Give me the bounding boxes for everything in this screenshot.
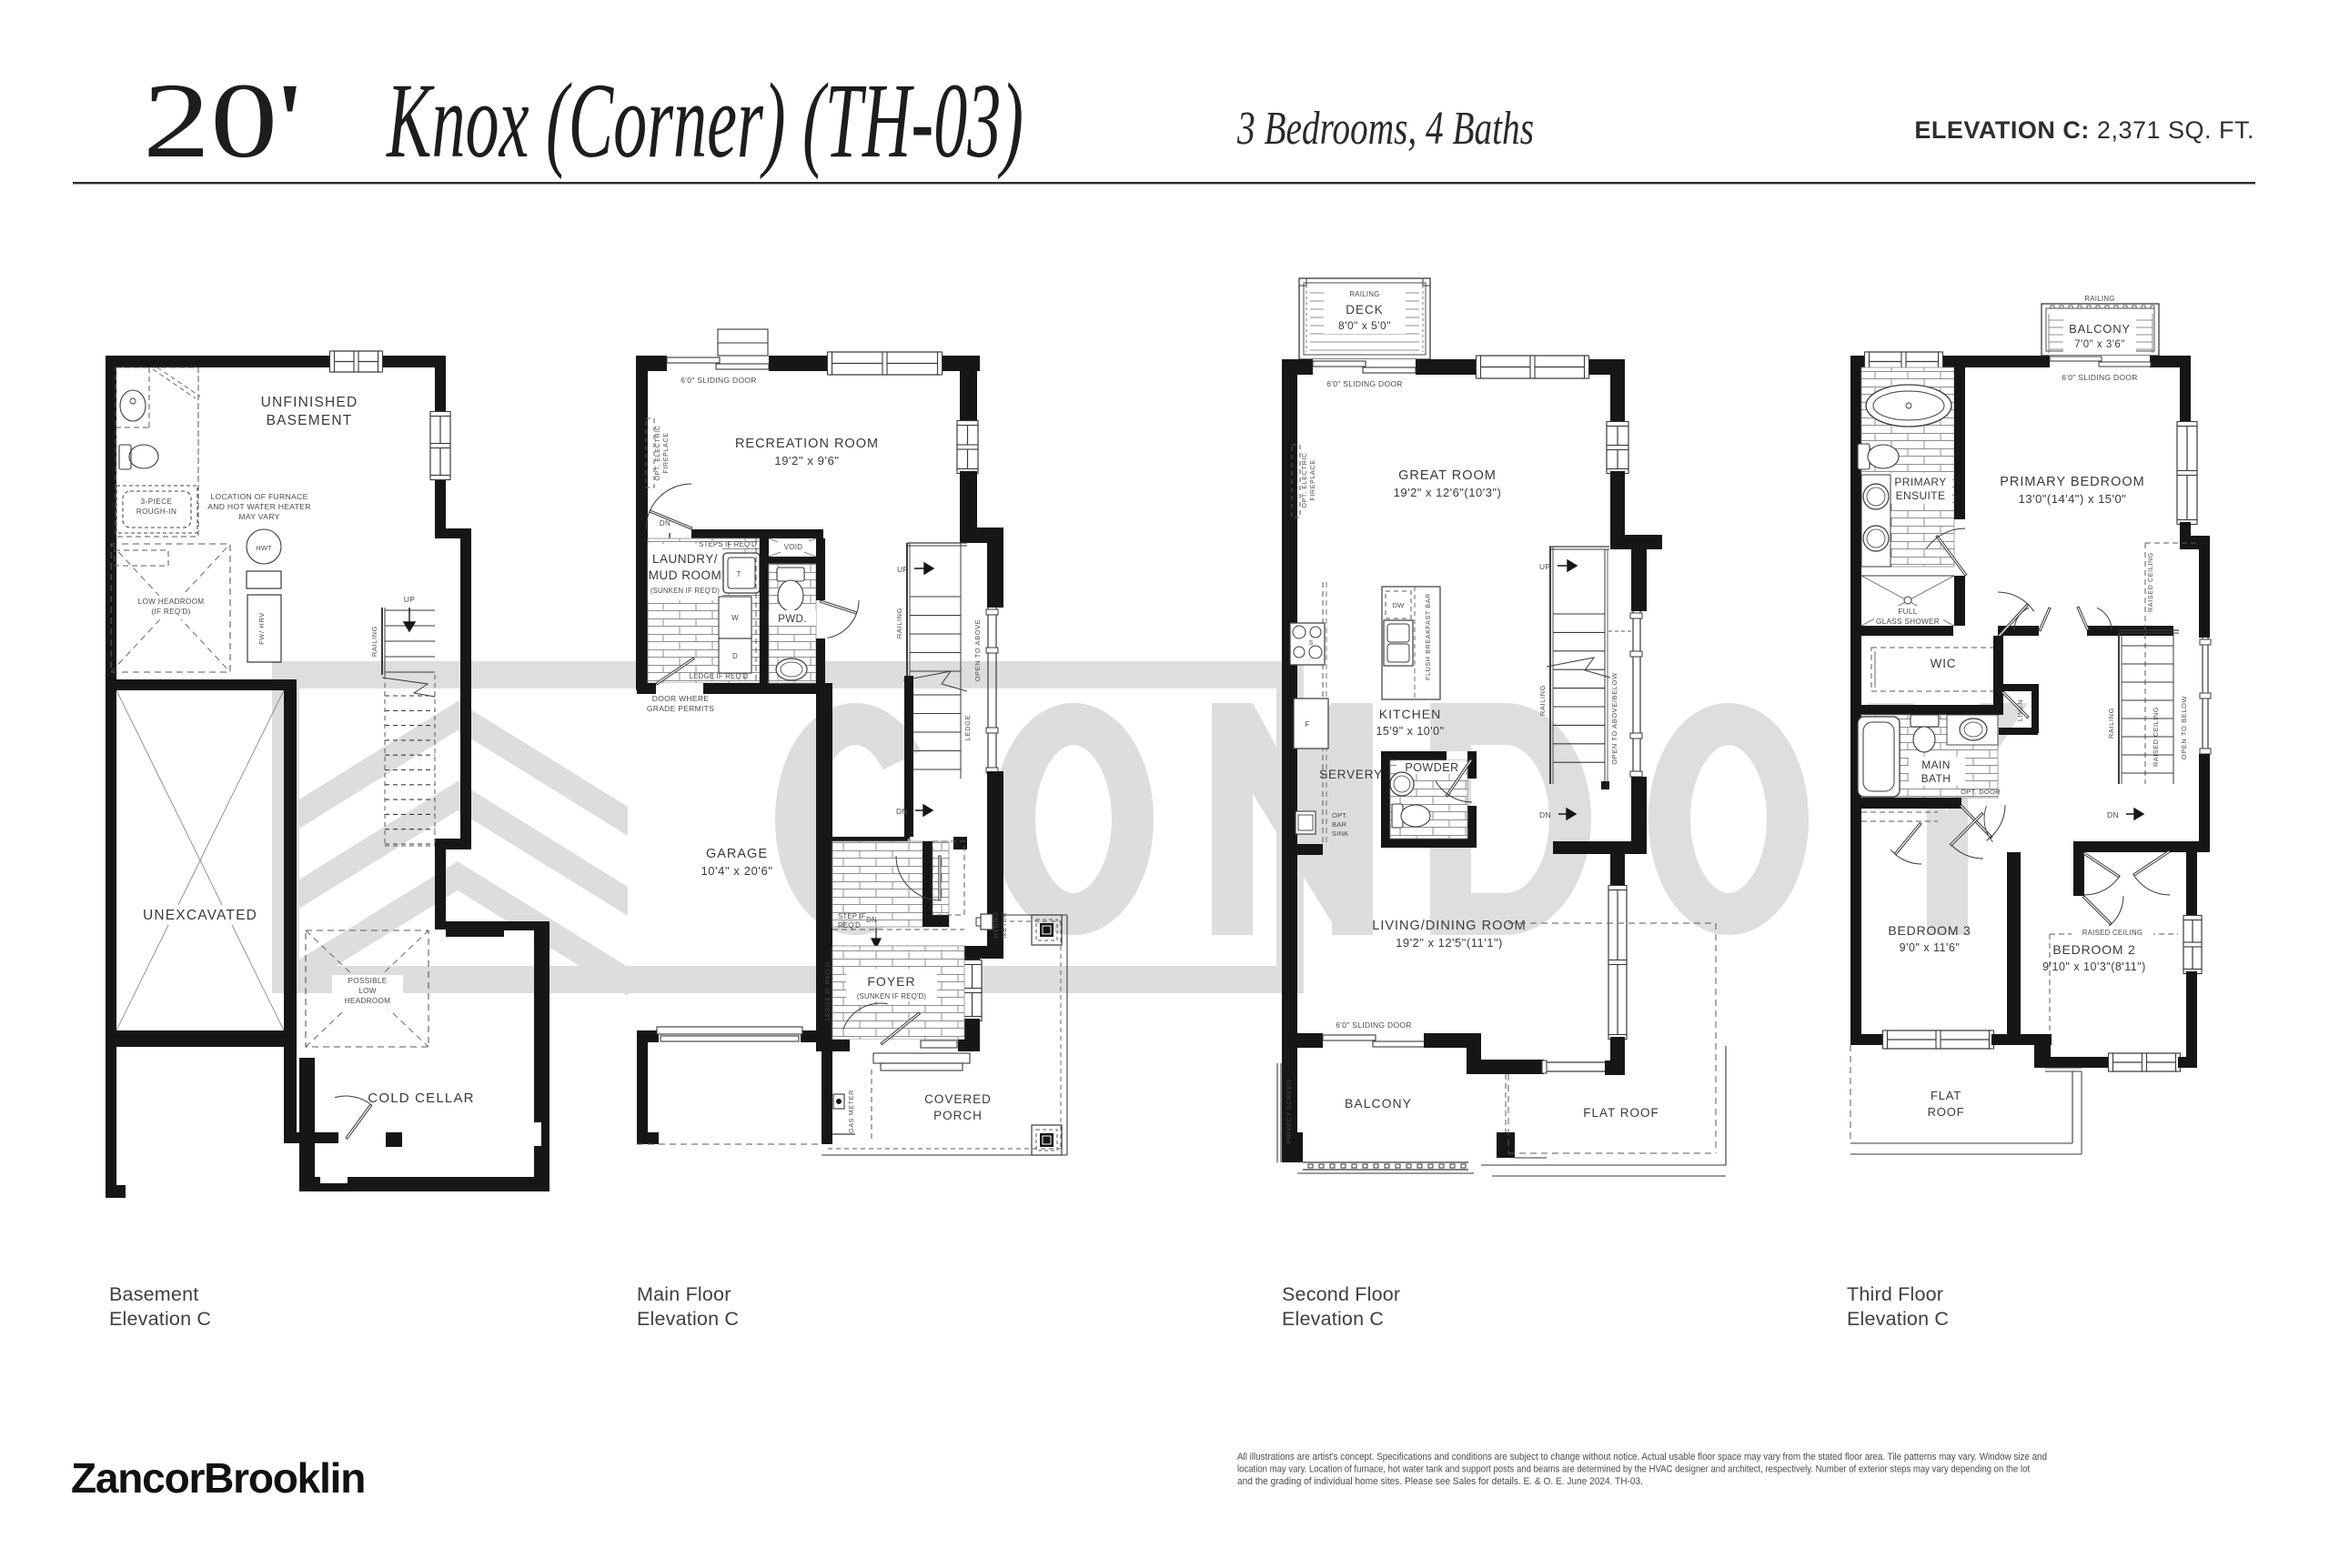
svg-text:Second Floor: Second Floor: [1282, 1283, 1400, 1305]
svg-text:DN: DN: [1539, 810, 1551, 819]
svg-text:DOOR WHERE: DOOR WHERE: [652, 694, 710, 703]
svg-text:BALCONY: BALCONY: [1345, 1096, 1412, 1111]
svg-text:HEADROOM: HEADROOM: [345, 997, 391, 1005]
svg-text:PWD.: PWD.: [778, 614, 807, 625]
svg-text:LOW HEADROOM: LOW HEADROOM: [138, 598, 205, 606]
svg-text:RAISED CEILING: RAISED CEILING: [2152, 707, 2160, 767]
svg-text:DN: DN: [2107, 810, 2119, 819]
svg-text:MUD ROOM: MUD ROOM: [649, 568, 722, 582]
svg-text:FIREPLACE: FIREPLACE: [661, 432, 670, 473]
svg-text:location may vary. Location of: location may vary. Location of furnace, …: [1237, 1464, 2030, 1475]
svg-text:FW/ HRV: FW/ HRV: [257, 612, 266, 645]
svg-text:FLUSH BREAKFAST BAR: FLUSH BREAKFAST BAR: [1424, 593, 1432, 680]
svg-text:POWDER: POWDER: [1405, 761, 1458, 774]
svg-text:DECK: DECK: [1346, 303, 1384, 317]
svg-text:UP: UP: [1539, 562, 1550, 571]
svg-text:ROOF: ROOF: [1928, 1105, 1965, 1119]
svg-text:RECREATION ROOM: RECREATION ROOM: [735, 437, 879, 451]
svg-text:COLD CELLAR: COLD CELLAR: [368, 1091, 474, 1106]
svg-text:19'2" x 9'6": 19'2" x 9'6": [774, 454, 839, 467]
svg-text:UNFINISHED: UNFINISHED: [261, 395, 358, 410]
svg-text:PRIMARY BEDROOM: PRIMARY BEDROOM: [2000, 475, 2145, 489]
svg-text:(IF REQ'D): (IF REQ'D): [151, 608, 190, 616]
svg-text:Elevation C: Elevation C: [1282, 1308, 1384, 1330]
svg-text:15'9" x 10'0": 15'9" x 10'0": [1376, 725, 1444, 738]
svg-text:13'0"(14'4") x 15'0": 13'0"(14'4") x 15'0": [2019, 492, 2127, 506]
svg-text:GLASS SHOWER: GLASS SHOWER: [1876, 618, 1940, 626]
svg-text:PRIVACY SCREEN: PRIVACY SCREEN: [1285, 1079, 1293, 1143]
svg-text:DW: DW: [1392, 601, 1405, 609]
svg-text:6'0" SLIDING DOOR: 6'0" SLIDING DOOR: [681, 376, 756, 385]
svg-text:19'2" x 12'6"(10'3"): 19'2" x 12'6"(10'3"): [1394, 486, 1502, 499]
svg-text:OPT.: OPT.: [1332, 811, 1348, 819]
svg-text:RAILING: RAILING: [1349, 290, 1379, 298]
svg-text:9'0" x 11'6": 9'0" x 11'6": [1900, 941, 1961, 954]
svg-text:6'0" SLIDING DOOR: 6'0" SLIDING DOOR: [1336, 1020, 1411, 1030]
svg-text:Main Floor: Main Floor: [637, 1283, 731, 1305]
svg-text:BASEMENT: BASEMENT: [267, 413, 353, 428]
svg-text:ROUGH-IN: ROUGH-IN: [136, 508, 177, 516]
svg-text:STEPS IF REQ'D: STEPS IF REQ'D: [699, 540, 757, 548]
svg-text:FLAT: FLAT: [1931, 1089, 1961, 1102]
svg-text:METER: METER: [1000, 912, 1008, 938]
svg-text:OPEN TO BELOW: OPEN TO BELOW: [2180, 695, 2188, 759]
svg-text:GREAT ROOM: GREAT ROOM: [1398, 468, 1497, 483]
svg-text:OPT. ELECTRIC: OPT. ELECTRIC: [653, 425, 661, 480]
svg-text:HWT: HWT: [256, 544, 272, 552]
svg-text:20': 20': [143, 61, 302, 180]
svg-text:FULL: FULL: [1898, 608, 1917, 616]
svg-text:ZancorBrooklin: ZancorBrooklin: [71, 1454, 365, 1502]
svg-text:OPT. DOOR: OPT. DOOR: [1961, 788, 2001, 796]
svg-text:Third Floor: Third Floor: [1847, 1283, 1943, 1305]
svg-text:REQ'D: REQ'D: [838, 921, 861, 930]
svg-text:(SUNKEN IF REQ'D): (SUNKEN IF REQ'D): [857, 992, 927, 1000]
svg-text:and the grading of individual: and the grading of individual home sites…: [1237, 1476, 1643, 1487]
svg-text:Elevation C: Elevation C: [1847, 1308, 1949, 1330]
svg-text:BEDROOM 2: BEDROOM 2: [2052, 942, 2135, 957]
svg-text:3 Bedrooms, 4 Baths: 3 Bedrooms, 4 Baths: [1236, 103, 1534, 155]
svg-text:LAUNDRY/: LAUNDRY/: [652, 552, 718, 566]
svg-text:8'0" x 5'0": 8'0" x 5'0": [1338, 319, 1391, 332]
svg-text:KITCHEN: KITCHEN: [1379, 707, 1441, 721]
svg-text:D: D: [732, 652, 738, 660]
svg-text:GARAGE: GARAGE: [706, 847, 768, 861]
svg-text:RAILING: RAILING: [2107, 708, 2115, 739]
svg-text:FLAT ROOF: FLAT ROOF: [1583, 1106, 1659, 1120]
svg-text:LEDGE IF REQ'D: LEDGE IF REQ'D: [823, 961, 832, 1020]
svg-text:LOCATION OF FURNACE: LOCATION OF FURNACE: [210, 492, 308, 501]
svg-text:T: T: [736, 570, 741, 578]
svg-text:(SUNKEN IF REQ'D): (SUNKEN IF REQ'D): [650, 587, 721, 595]
svg-text:WIC: WIC: [1931, 657, 1957, 670]
svg-text:Elevation C: Elevation C: [109, 1308, 211, 1330]
svg-text:6'0" SLIDING DOOR: 6'0" SLIDING DOOR: [2062, 373, 2137, 382]
svg-text:S: S: [1309, 640, 1314, 647]
svg-text:PORCH: PORCH: [933, 1109, 983, 1122]
svg-text:OPT. ELECTRIC: OPT. ELECTRIC: [1300, 452, 1308, 508]
svg-text:GRADE PERMITS: GRADE PERMITS: [647, 704, 714, 713]
svg-text:RAISED CEILING: RAISED CEILING: [2082, 929, 2143, 937]
svg-text:BALCONY: BALCONY: [2069, 322, 2131, 336]
svg-text:7'0" x 3'6": 7'0" x 3'6": [2074, 339, 2125, 350]
svg-text:PRIMARY: PRIMARY: [1894, 476, 1946, 488]
svg-text:All illustrations are artist's: All illustrations are artist's concept. …: [1237, 1452, 2047, 1462]
svg-text:BATH: BATH: [1921, 772, 1951, 785]
svg-text:LIVING/DINING ROOM: LIVING/DINING ROOM: [1372, 919, 1526, 933]
svg-text:3-PIECE: 3-PIECE: [141, 498, 173, 506]
svg-text:HYDRO: HYDRO: [992, 912, 1000, 939]
svg-text:OPEN TO ABOVE: OPEN TO ABOVE: [973, 619, 982, 682]
svg-text:RAILING: RAILING: [370, 626, 378, 657]
svg-text:UNEXCAVATED: UNEXCAVATED: [143, 908, 257, 923]
svg-text:BEDROOM 3: BEDROOM 3: [1888, 923, 1971, 938]
svg-text:W: W: [731, 614, 739, 622]
svg-text:VOID: VOID: [784, 543, 803, 551]
svg-text:10'4" x 20'6": 10'4" x 20'6": [701, 864, 772, 878]
svg-text:6'0" SLIDING DOOR: 6'0" SLIDING DOOR: [1326, 379, 1402, 388]
svg-text:MAIN: MAIN: [1921, 759, 1951, 771]
svg-text:AND HOT WATER HEATER: AND HOT WATER HEATER: [207, 502, 311, 511]
svg-text:RAILING: RAILING: [2084, 295, 2114, 303]
svg-text:BAR: BAR: [1332, 820, 1347, 829]
svg-text:9'10" x 10'3"(8'11"): 9'10" x 10'3"(8'11"): [2042, 960, 2146, 973]
svg-text:UP: UP: [404, 595, 416, 604]
svg-text:SERVERY: SERVERY: [1319, 768, 1383, 781]
svg-text:FOYER: FOYER: [867, 974, 915, 989]
svg-text:F: F: [1305, 720, 1309, 729]
svg-text:ELEVATION C: 2,371 SQ. FT.: ELEVATION C: 2,371 SQ. FT.: [1914, 116, 2254, 144]
svg-text:Basement: Basement: [109, 1283, 198, 1305]
svg-text:LOW: LOW: [358, 987, 377, 995]
svg-text:SINK: SINK: [1332, 829, 1349, 838]
svg-text:19'2" x 12'5"(11'1"): 19'2" x 12'5"(11'1"): [1396, 936, 1503, 950]
svg-text:FIREPLACE: FIREPLACE: [1308, 459, 1316, 500]
svg-text:POSSIBLE: POSSIBLE: [348, 977, 388, 985]
svg-text:STEP IF: STEP IF: [838, 912, 866, 920]
svg-text:OPEN TO ABOVE/BELOW: OPEN TO ABOVE/BELOW: [1610, 672, 1618, 765]
svg-text:RAISED CEILING: RAISED CEILING: [2146, 552, 2154, 612]
svg-text:ENSUITE: ENSUITE: [1896, 489, 1946, 502]
svg-text:DN: DN: [866, 916, 877, 924]
svg-text:LEDGE: LEDGE: [963, 715, 972, 740]
svg-text:DN: DN: [660, 519, 670, 528]
svg-text:GAS METER: GAS METER: [847, 1090, 855, 1133]
svg-text:MAY VARY: MAY VARY: [238, 512, 279, 521]
svg-text:RAILING: RAILING: [895, 608, 903, 638]
svg-text:Elevation C: Elevation C: [637, 1308, 739, 1330]
svg-text:COVERED: COVERED: [924, 1092, 992, 1106]
svg-text:Knox (Corner) (TH-03): Knox (Corner) (TH-03): [386, 61, 1023, 180]
svg-text:DN: DN: [896, 807, 908, 816]
svg-text:RAILING: RAILING: [1538, 685, 1547, 716]
